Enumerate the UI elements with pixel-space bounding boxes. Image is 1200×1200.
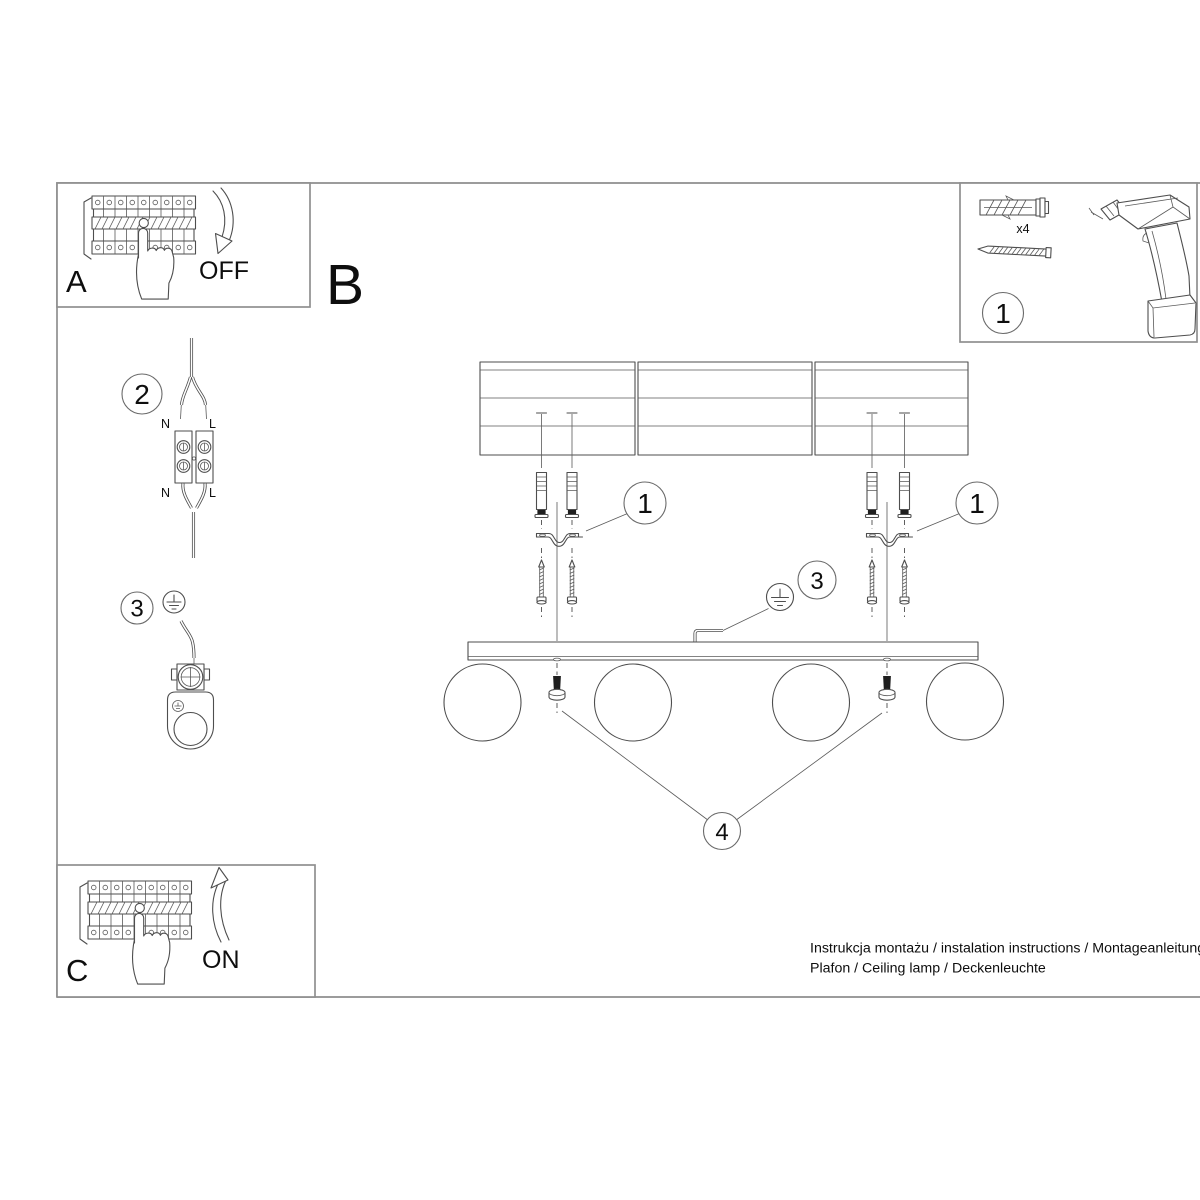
mounting-screw	[900, 560, 909, 604]
live-label-top: L	[209, 417, 216, 431]
instruction-sheet: = OFF A	[0, 0, 1200, 1200]
instruction-drawing: = OFF A	[0, 0, 1200, 1200]
glass-globe	[773, 664, 850, 741]
main-diagram: 1 1 3 4	[444, 362, 1004, 850]
callout-1-number-right: 1	[969, 488, 985, 519]
glass-globe	[595, 664, 672, 741]
mounting-bracket	[168, 692, 214, 749]
callout-4-number: 4	[715, 819, 728, 846]
callout-1-number-left: 1	[637, 488, 653, 519]
off-label: OFF	[199, 257, 249, 285]
step-a-box: OFF A	[57, 183, 310, 307]
mounting-strap	[537, 534, 583, 547]
step-3-ground-diagram: 3	[121, 591, 214, 749]
lamp-bar	[468, 642, 978, 660]
callout-3-number-main: 3	[810, 568, 823, 595]
ground-terminal	[172, 664, 210, 690]
ground-callout: 3	[695, 561, 836, 642]
parts-box: x4 1	[960, 183, 1197, 342]
mounting-screw	[567, 560, 576, 604]
footer: Instrukcja montażu / instalation instruc…	[810, 941, 1200, 977]
neutral-label-bottom: N	[161, 486, 170, 500]
step-2-wiring-diagram: 2 N L N L	[122, 338, 216, 558]
fixing-screw-left	[549, 658, 565, 713]
step-a-label: A	[66, 264, 87, 299]
wall-plug	[535, 473, 548, 518]
mounting-screw	[537, 560, 546, 604]
step-c-label: C	[66, 953, 88, 988]
live-label-bottom: L	[209, 486, 216, 500]
step-c-box: ON C	[57, 865, 315, 997]
cable-centerlines	[557, 502, 887, 641]
glass-globe	[444, 664, 521, 741]
callout-3-number: 3	[130, 596, 143, 623]
fixing-screw-right	[879, 658, 895, 713]
glass-globe	[927, 663, 1004, 740]
ceiling-planks	[480, 362, 968, 455]
earth-symbol-icon	[163, 591, 185, 613]
earth-symbol-icon	[767, 584, 794, 611]
wall-plug	[898, 473, 911, 518]
mounting-strap	[867, 534, 913, 547]
footer-line-1: Instrukcja montażu / instalation instruc…	[810, 941, 1200, 957]
mounting-screw	[867, 560, 876, 604]
dowel-quantity-label: x4	[1016, 222, 1029, 236]
on-label: ON	[202, 946, 240, 974]
step-b-label: B	[326, 253, 364, 317]
callout-2-number: 2	[134, 379, 150, 410]
wall-plug	[866, 473, 879, 518]
neutral-label-top: N	[161, 417, 170, 431]
wall-plug	[566, 473, 579, 518]
footer-line-2: Plafon / Ceiling lamp / Deckenleuchte	[810, 961, 1046, 977]
terminal-block	[175, 431, 213, 483]
callout-1-number-parts: 1	[995, 298, 1011, 329]
